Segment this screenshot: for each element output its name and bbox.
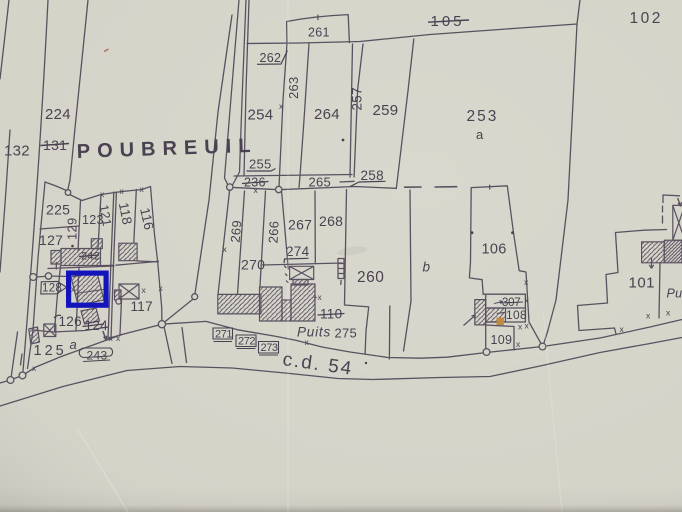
svg-text:225: 225 xyxy=(46,202,70,218)
svg-text:258: 258 xyxy=(361,168,384,183)
svg-text:129: 129 xyxy=(65,217,80,240)
svg-text:+x: +x xyxy=(313,293,322,302)
svg-text:268: 268 xyxy=(319,213,343,229)
svg-text:125: 125 xyxy=(34,343,67,359)
svg-text:b: b xyxy=(423,260,431,275)
svg-text:132: 132 xyxy=(4,143,30,160)
svg-text:275: 275 xyxy=(335,326,358,341)
svg-text:267: 267 xyxy=(288,217,312,233)
svg-text:Pu: Pu xyxy=(667,287,682,301)
svg-text:266: 266 xyxy=(266,220,282,243)
svg-text:117: 117 xyxy=(131,299,153,314)
svg-text:253: 253 xyxy=(467,108,499,125)
svg-text:a: a xyxy=(70,337,78,352)
svg-text:255: 255 xyxy=(249,157,272,172)
svg-text:260: 260 xyxy=(357,269,384,286)
svg-text:262: 262 xyxy=(260,51,282,65)
svg-text:127: 127 xyxy=(39,232,63,248)
svg-text:259: 259 xyxy=(373,102,399,119)
svg-text:269: 269 xyxy=(228,219,245,243)
svg-text:106: 106 xyxy=(482,242,507,258)
svg-text:102: 102 xyxy=(630,10,663,27)
svg-text:126: 126 xyxy=(59,314,82,329)
svg-text:270: 270 xyxy=(241,257,265,273)
svg-text:272: 272 xyxy=(238,336,255,348)
svg-text:264: 264 xyxy=(314,106,340,123)
svg-text:Puits: Puits xyxy=(297,325,331,340)
svg-text:101: 101 xyxy=(629,275,656,292)
svg-text:257: 257 xyxy=(350,87,365,110)
svg-text:224: 224 xyxy=(45,106,71,123)
svg-text:274: 274 xyxy=(286,244,310,259)
svg-text:254: 254 xyxy=(248,107,274,124)
svg-text:273: 273 xyxy=(261,342,278,354)
svg-text:261: 261 xyxy=(308,26,330,40)
svg-text:a: a xyxy=(476,127,484,142)
svg-text:109: 109 xyxy=(491,333,513,347)
svg-text:265: 265 xyxy=(309,175,332,190)
